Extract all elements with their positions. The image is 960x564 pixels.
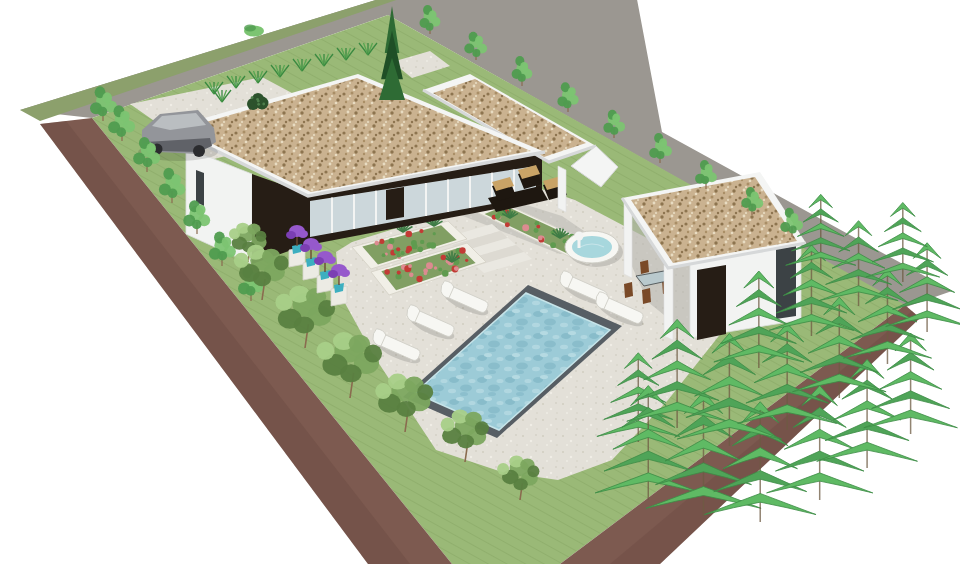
flower bbox=[465, 259, 468, 262]
flower bbox=[397, 271, 401, 275]
dining-chair bbox=[642, 288, 651, 304]
flower bbox=[379, 239, 384, 244]
fountain-statue bbox=[575, 232, 584, 241]
flower bbox=[522, 224, 529, 231]
dining-chair bbox=[624, 282, 633, 298]
flower bbox=[534, 228, 539, 233]
flower bbox=[505, 222, 510, 227]
flower bbox=[411, 240, 417, 246]
left-wall-window bbox=[196, 170, 204, 206]
pool-house-door bbox=[697, 265, 726, 340]
facade-dark-divider bbox=[386, 187, 404, 220]
flower bbox=[406, 249, 410, 253]
flower bbox=[424, 272, 428, 276]
flower bbox=[384, 269, 390, 275]
flower bbox=[459, 247, 465, 253]
flower bbox=[550, 242, 556, 248]
flower bbox=[434, 266, 437, 269]
flower bbox=[441, 255, 446, 260]
dining-chair bbox=[640, 260, 649, 274]
flower bbox=[538, 236, 543, 241]
flower bbox=[382, 253, 386, 257]
pool-house-post bbox=[624, 203, 632, 278]
flower bbox=[396, 247, 400, 251]
flower bbox=[426, 262, 433, 269]
flower bbox=[409, 273, 414, 278]
flower bbox=[454, 266, 459, 271]
flower bbox=[419, 229, 423, 233]
flower bbox=[389, 238, 395, 244]
car-wheel bbox=[193, 145, 205, 157]
canopy-post bbox=[558, 166, 566, 212]
architectural-3d-site-render bbox=[0, 0, 960, 564]
flower bbox=[417, 247, 423, 253]
flower bbox=[374, 241, 379, 246]
flower bbox=[536, 225, 540, 229]
flower bbox=[400, 251, 404, 255]
flower bbox=[438, 267, 442, 271]
flower bbox=[433, 232, 436, 235]
flower bbox=[420, 240, 424, 244]
flower bbox=[442, 270, 449, 277]
site-plan-svg bbox=[0, 0, 960, 564]
flower bbox=[430, 242, 436, 248]
flower bbox=[416, 276, 422, 282]
flower bbox=[405, 231, 412, 238]
flower bbox=[495, 214, 501, 220]
flower bbox=[408, 264, 412, 268]
flower bbox=[387, 244, 393, 250]
